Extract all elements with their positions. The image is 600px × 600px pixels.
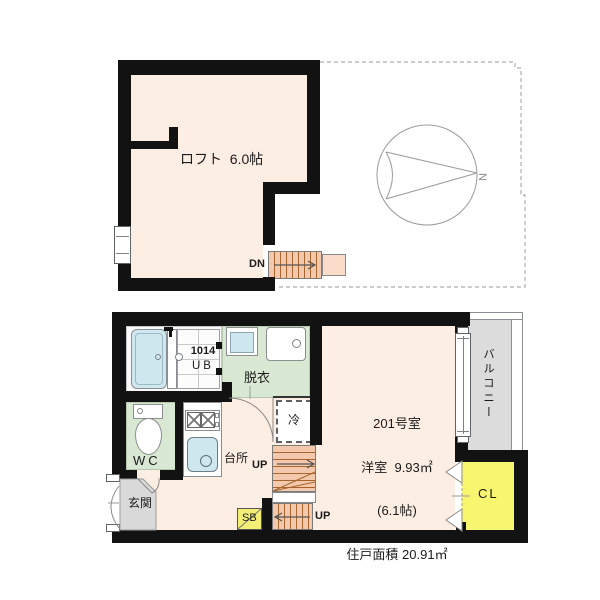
window-tick bbox=[116, 253, 129, 254]
compass-lens bbox=[386, 152, 393, 199]
wc-bottom-wall-right bbox=[160, 470, 175, 480]
wc-kitchen-wall bbox=[175, 402, 183, 480]
stair-stub-wall bbox=[262, 498, 272, 531]
loft-floor-lower bbox=[131, 74, 263, 278]
dressing-partition-line bbox=[273, 396, 310, 398]
compass-circle bbox=[377, 125, 477, 225]
total-area: 住戸面積 20.91㎡ bbox=[327, 548, 467, 563]
sink-drain bbox=[200, 455, 212, 467]
unit-bath-model-label: 1014 bbox=[184, 346, 222, 357]
washbasin-drain bbox=[292, 339, 301, 348]
loft-partition-stub bbox=[169, 127, 178, 149]
loft-right-wall bbox=[307, 60, 320, 194]
loft-top-wall bbox=[118, 60, 320, 75]
room-number: 201号室 bbox=[327, 417, 467, 432]
kitchen-corner-stub bbox=[222, 382, 232, 402]
stove-knob bbox=[215, 422, 219, 427]
bathtub-drain bbox=[155, 354, 161, 360]
window-end-cap bbox=[457, 327, 469, 334]
compass-arrow bbox=[386, 152, 477, 199]
stove-burner bbox=[187, 412, 201, 428]
compass-north-label: N bbox=[476, 173, 488, 181]
fridge-label: 冷 bbox=[288, 414, 300, 426]
unit-bath-label: UB bbox=[184, 361, 222, 373]
stairs-down-landing bbox=[322, 254, 346, 276]
stairs-up-label-1: UP bbox=[252, 460, 267, 471]
bath-faucet-icon bbox=[169, 331, 172, 337]
loft-inner-wall-upper bbox=[263, 182, 275, 245]
kitchen-sink bbox=[187, 437, 218, 472]
bath-bottom-wall bbox=[118, 391, 232, 402]
stairs-down-label: DN bbox=[249, 259, 265, 270]
balcony-label: バルコニー bbox=[481, 348, 494, 421]
entrance-label: 玄関 bbox=[128, 497, 152, 509]
closet-right-wall bbox=[514, 450, 528, 543]
kitchen-label: 台所 bbox=[224, 452, 248, 464]
entrance-door-post bbox=[106, 474, 120, 482]
floor-plan-canvas: DN ロフト 6.0帖 bbox=[0, 0, 600, 600]
toilet-button bbox=[137, 408, 143, 414]
shoebox-label: SB bbox=[242, 513, 257, 524]
wc-label: WC bbox=[133, 454, 161, 467]
dressing-room-right-wall bbox=[310, 326, 322, 445]
entrance-door-post bbox=[106, 524, 120, 532]
bath-floor-drain bbox=[175, 353, 183, 361]
balcony-rail-top bbox=[468, 312, 523, 320]
bath-tile-floor bbox=[177, 329, 220, 389]
stove-burner bbox=[201, 412, 215, 428]
room-tatami: (6.1帖) bbox=[327, 504, 467, 519]
dressing-label: 脱衣 bbox=[244, 371, 270, 384]
loft-room-label: ロフト 6.0帖 bbox=[180, 152, 263, 166]
stairs-up-label-2: UP bbox=[315, 511, 330, 522]
stove-knob bbox=[215, 413, 219, 418]
balcony-rail-right bbox=[511, 315, 523, 452]
window-tick bbox=[457, 338, 469, 339]
entrance-door-swing bbox=[111, 486, 119, 528]
loft-bottom-wall bbox=[118, 278, 275, 291]
stairs-up-run bbox=[272, 503, 313, 530]
washer bbox=[230, 332, 254, 353]
lower-top-wall bbox=[112, 312, 470, 326]
closet-label: CL bbox=[478, 487, 499, 500]
room-info-block: 201号室 洋室 9.93㎡ (6.1帖) 住戸面積 20.91㎡ bbox=[327, 388, 467, 591]
bathtub bbox=[131, 329, 167, 389]
stairs-down bbox=[268, 251, 322, 279]
wc-bottom-wall-left bbox=[126, 470, 137, 480]
stairs-landing bbox=[272, 492, 316, 503]
window-tick bbox=[116, 236, 129, 237]
room-type-area: 洋室 9.93㎡ bbox=[327, 461, 467, 476]
stairs-up-winder bbox=[272, 445, 316, 492]
loft-window bbox=[114, 226, 131, 264]
